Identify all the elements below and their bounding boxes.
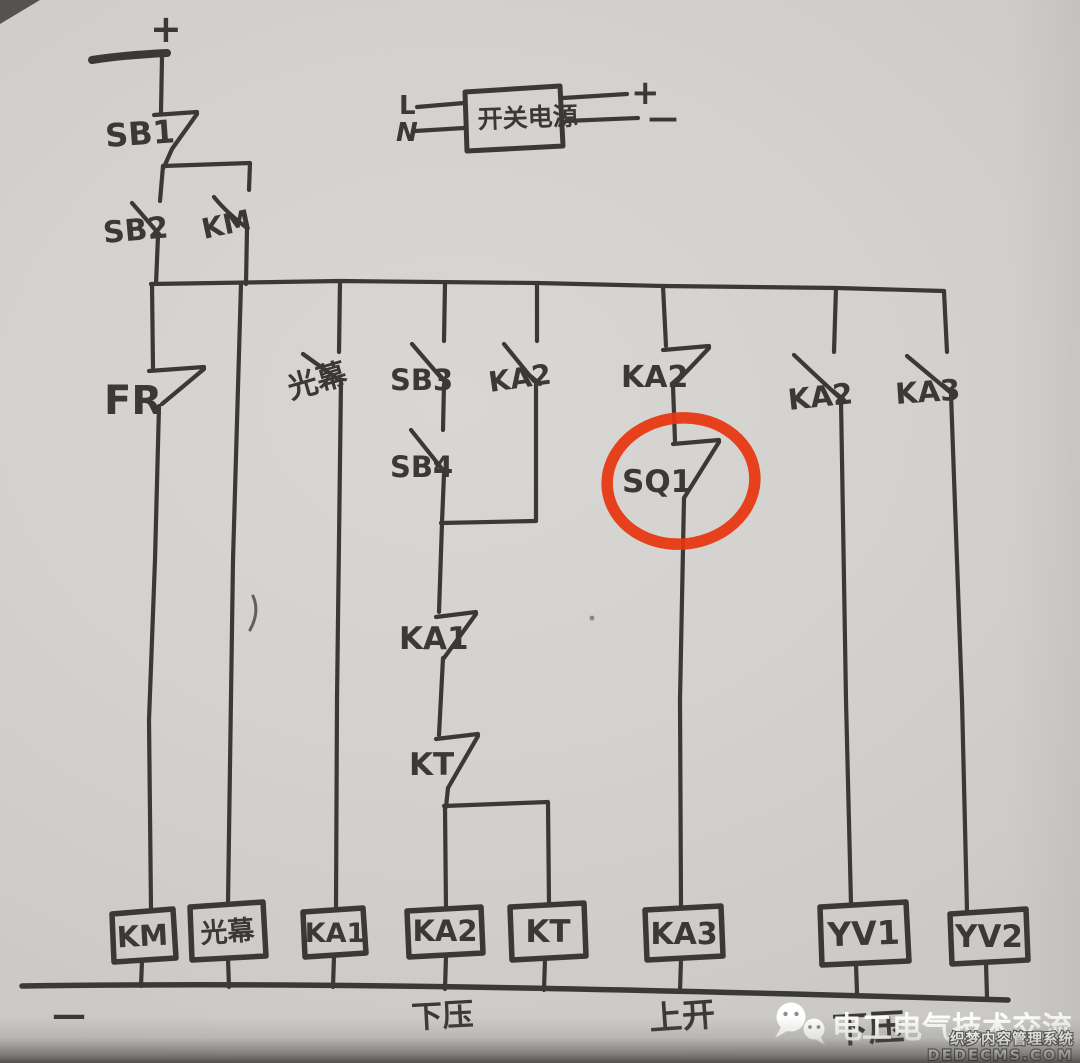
ka2-coil-label: KA2 xyxy=(412,914,477,948)
wire-to-ka2-coil xyxy=(445,807,446,909)
junction-sb4-ka2 xyxy=(441,521,535,523)
positive-rail xyxy=(92,51,167,112)
power-supply-label: 开关电源 xyxy=(477,102,578,134)
ka2-right-label: KA2 xyxy=(786,376,854,417)
sb2-label: SB2 xyxy=(102,210,170,251)
sb3-label: SB3 xyxy=(390,363,453,397)
bottom-minus-label: — xyxy=(52,995,86,1035)
fr-label: FR xyxy=(104,378,162,424)
circuit-diagram: + SB1 SB2 KM L N 开关电源 + — FR 光幕 SB3 SB4 … xyxy=(0,0,1080,1063)
watermark-cms-domain: DEDECMS.COM xyxy=(927,1048,1074,1063)
wechat-icon xyxy=(775,1003,825,1046)
sb4-label: SB4 xyxy=(390,450,453,484)
watermark-cms-name: 织梦内容管理系统 xyxy=(950,1030,1074,1048)
down-press-label: 下压 xyxy=(411,997,475,1036)
contact-kt xyxy=(436,658,478,807)
ka3-coil-label: KA3 xyxy=(650,917,717,952)
ka3-right-label: KA3 xyxy=(894,373,961,411)
wire-lightcurtain-coil xyxy=(228,284,241,903)
stray-dot xyxy=(590,616,595,621)
kt-coil-label: KT xyxy=(525,914,570,950)
ka2-nc-label: KA2 xyxy=(621,360,688,395)
yv2-coil-label: YV2 xyxy=(954,919,1023,955)
terminal-l-label: L xyxy=(399,91,416,121)
ka1-coil-label: KA1 xyxy=(305,918,366,949)
branch-to-kt-coil xyxy=(444,802,549,904)
stray-pen-mark xyxy=(250,596,256,630)
photo-of-hand-drawn-circuit: + SB1 SB2 KM L N 开关电源 + — FR 光幕 SB3 SB4 … xyxy=(0,0,1080,1063)
ka2-parallel-label: KA2 xyxy=(486,358,553,399)
supply-minus-label: — xyxy=(648,101,678,136)
up-open-label: 上开 xyxy=(648,994,717,1038)
yv1-coil-label: YV1 xyxy=(826,913,901,955)
wire-sb1-to-km xyxy=(163,163,250,190)
bottom-bus xyxy=(22,985,1008,1000)
sb1-label: SB1 xyxy=(104,112,176,155)
top-plus-label: + xyxy=(150,7,182,51)
km-coil-label: KM xyxy=(116,918,169,955)
kt-contact-label: KT xyxy=(409,747,454,783)
contact-sq1 xyxy=(673,440,719,906)
ka1-contact-label: KA1 xyxy=(399,621,469,657)
contact-ka2-parallel xyxy=(504,283,540,521)
photo-corner-shadow xyxy=(0,0,40,24)
terminal-n-label: N xyxy=(396,118,418,148)
watermark: 电工电气技术交流 织梦内容管理系统 DEDECMS.COM xyxy=(775,1003,1074,1063)
top-bus xyxy=(151,281,944,291)
light-curtain-coil-label: 光幕 xyxy=(198,915,256,950)
contact-sb3 xyxy=(412,283,447,430)
sq1-label: SQ1 xyxy=(622,464,692,500)
